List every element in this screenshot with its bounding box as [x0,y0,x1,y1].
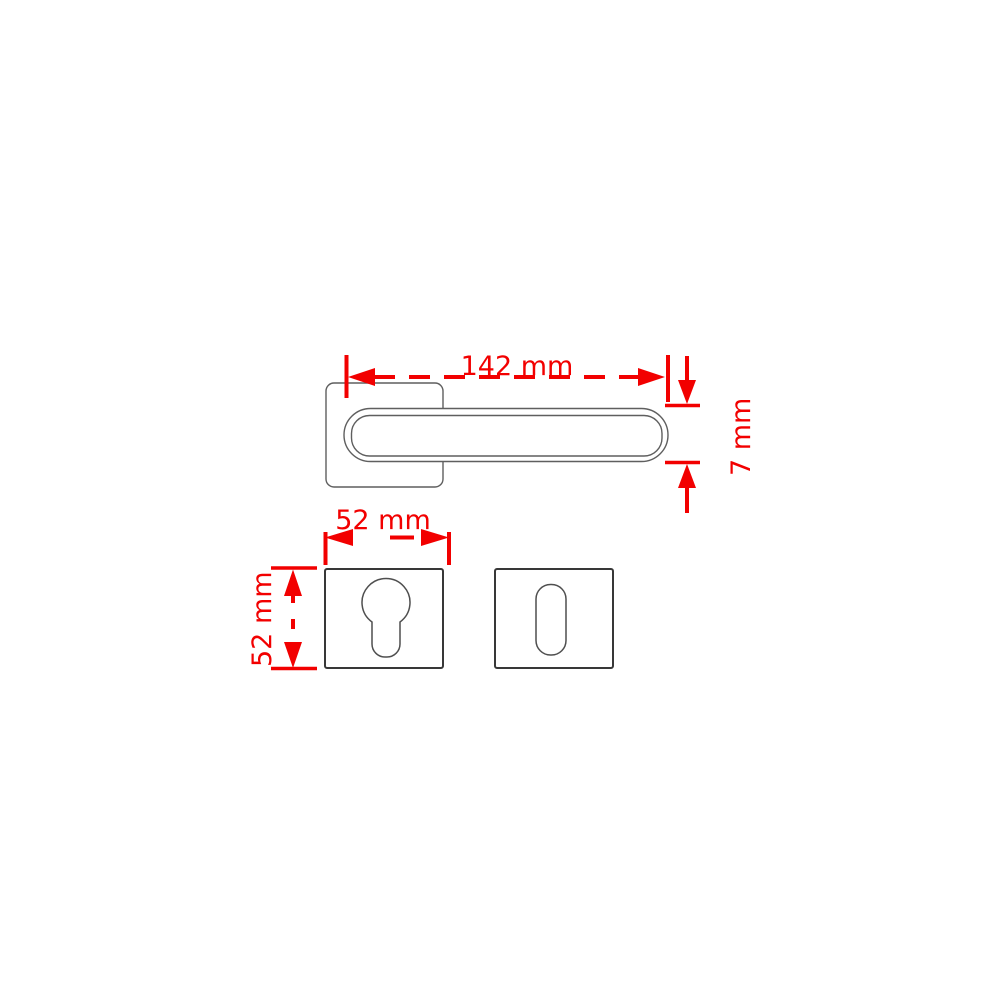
handle-top-view [326,383,668,487]
arrow-up-icon [284,570,302,597]
arrow-up-icon [678,464,696,488]
dimension-escutcheon-width: 52 mm [325,505,449,565]
escutcheon-height-label: 52 mm [247,571,278,667]
dimension-escutcheon-height: 52 mm [247,568,317,669]
technical-drawing-canvas: 142 mm 7 mm 52 mm [0,0,1000,1000]
dimension-handle-thickness: 7 mm [665,356,757,513]
arrow-right-icon [638,368,665,386]
handle-lever-inner [352,416,663,457]
arrow-right-icon [421,529,449,546]
handle-length-label: 142 mm [461,351,574,382]
arrow-down-icon [678,380,696,404]
keyhole-icon [536,585,566,656]
arrow-down-icon [284,642,302,668]
handle-thickness-label: 7 mm [726,398,757,476]
cylinder-escutcheon [325,569,443,668]
technical-drawing-page: 142 mm 7 mm 52 mm [0,0,1000,1000]
key-escutcheon [495,569,613,668]
